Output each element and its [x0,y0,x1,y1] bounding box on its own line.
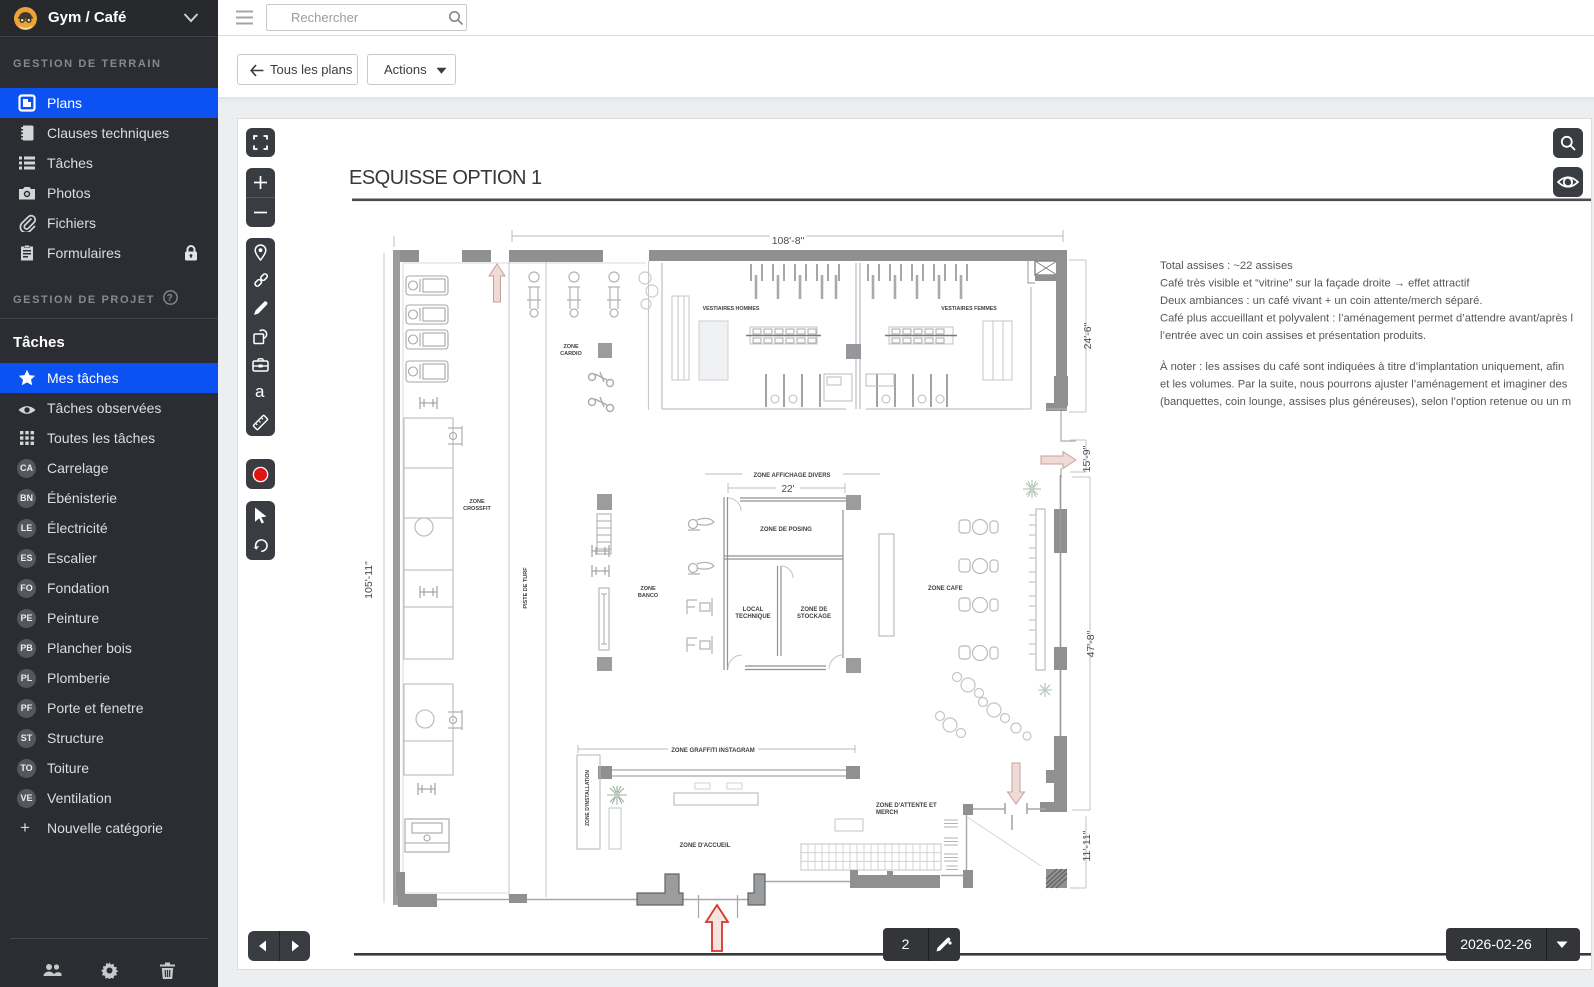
svg-text:ZONE AFFICHAGE DIVERS: ZONE AFFICHAGE DIVERS [753,473,830,479]
svg-text:VESTIAIRES FEMMES: VESTIAIRES FEMMES [941,306,997,312]
svg-text:ZONE: ZONE [469,499,485,505]
svg-text:l’entrée avec un coin assises: l’entrée avec un coin assises et présent… [1160,330,1426,342]
svg-text:ZONE CAFE: ZONE CAFE [928,586,963,592]
svg-text:et les volumes. Par la suite,: et les volumes. Par la suite, nous pourr… [1160,379,1568,391]
svg-text:ZONE D'INSTALLATION: ZONE D'INSTALLATION [585,770,591,826]
svg-text:TECHNIQUE: TECHNIQUE [735,614,770,620]
svg-text:Deux ambiances : un café vivan: Deux ambiances : un café vivant + un coi… [1160,295,1482,307]
svg-text:Café très visible et “vitrine”: Café très visible et “vitrine” sur la fa… [1160,278,1470,290]
svg-text:À noter : les assises du café: À noter : les assises du café sont indiq… [1160,360,1564,373]
svg-text:(banquettes, coin lounge, assi: (banquettes, coin lounge, assises plus g… [1160,396,1571,408]
svg-text:ZONE D'ATTENTE ET: ZONE D'ATTENTE ET [876,803,937,809]
svg-text:15'-9": 15'-9" [1081,445,1093,472]
svg-text:108'-8": 108'-8" [772,235,805,247]
svg-text:VESTIAIRES HOMMES: VESTIAIRES HOMMES [703,306,760,312]
svg-text:MERCH: MERCH [876,810,898,816]
svg-text:22': 22' [781,484,794,495]
svg-text:ZONE DE: ZONE DE [801,607,828,613]
svg-text:ZONE: ZONE [563,344,579,350]
svg-text:ZONE DE POSING: ZONE DE POSING [760,527,812,533]
svg-text:47'-8": 47'-8" [1085,630,1097,657]
svg-text:24'-6": 24'-6" [1082,322,1094,349]
svg-text:?: ? [166,293,174,304]
svg-text:PISTE DE TURF: PISTE DE TURF [523,567,529,609]
svg-text:Total assises : ~22 assises: Total assises : ~22 assises [1160,260,1293,272]
svg-text:STOCKAGE: STOCKAGE [797,614,831,620]
svg-text:11'-11": 11'-11" [1081,830,1093,861]
svg-text:CROSSFIT: CROSSFIT [463,506,491,512]
svg-text:CARDIO: CARDIO [560,351,582,357]
svg-text:ZONE D'ACCUEIL: ZONE D'ACCUEIL [680,843,731,849]
svg-text:Café plus accueillant et polyv: Café plus accueillant et polyvalent : l’… [1160,313,1573,325]
svg-text:ESQUISSE OPTION 1: ESQUISSE OPTION 1 [349,167,542,189]
svg-text:ZONE: ZONE [640,586,656,592]
svg-text:105'-11": 105'-11" [363,561,375,599]
svg-text:ZONE GRAFFITI INSTAGRAM: ZONE GRAFFITI INSTAGRAM [671,748,755,754]
svg-text:LOCAL: LOCAL [743,607,764,613]
svg-text:BANCO: BANCO [638,593,659,599]
